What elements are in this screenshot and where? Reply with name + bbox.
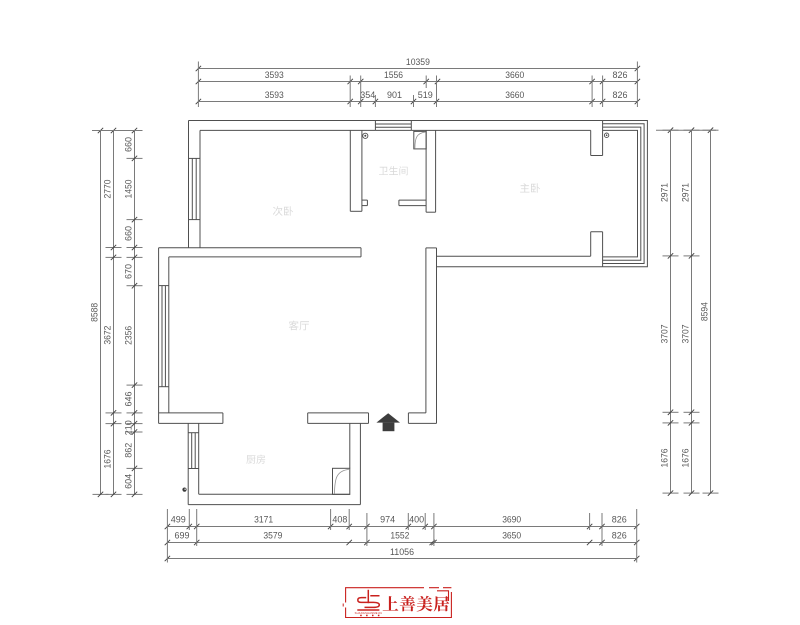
svg-text:670: 670 (123, 264, 133, 279)
svg-text:974: 974 (380, 515, 395, 525)
svg-text:210: 210 (123, 420, 133, 435)
svg-text:519: 519 (418, 90, 433, 100)
svg-text:400: 400 (409, 515, 424, 525)
svg-text:3171: 3171 (254, 515, 273, 525)
svg-text:2971: 2971 (659, 183, 669, 202)
svg-text:862: 862 (123, 443, 133, 458)
svg-text:826: 826 (612, 515, 627, 525)
svg-text:3650: 3650 (502, 531, 521, 541)
svg-text:8588: 8588 (89, 303, 99, 322)
svg-text:3660: 3660 (505, 70, 524, 80)
svg-text:3579: 3579 (263, 531, 282, 541)
svg-text:11056: 11056 (390, 547, 414, 557)
svg-text:408: 408 (332, 515, 347, 525)
svg-text:2356: 2356 (123, 326, 133, 345)
svg-text:2770: 2770 (102, 179, 112, 198)
svg-text:1450: 1450 (123, 179, 133, 198)
svg-text:SHANGSHANMEIJU: SHANGSHANMEIJU (355, 611, 383, 615)
svg-text:604: 604 (123, 474, 133, 489)
svg-text:826: 826 (613, 90, 628, 100)
svg-text:901: 901 (387, 90, 402, 100)
svg-text:3707: 3707 (659, 324, 669, 343)
svg-text:2971: 2971 (680, 183, 690, 202)
svg-text:1676: 1676 (680, 448, 690, 467)
svg-text:499: 499 (171, 515, 186, 525)
svg-text:1676: 1676 (102, 449, 112, 468)
svg-text:660: 660 (123, 137, 133, 152)
svg-text:3593: 3593 (265, 90, 284, 100)
svg-text:10359: 10359 (406, 57, 430, 67)
svg-text:1676: 1676 (659, 448, 669, 467)
svg-text:354: 354 (360, 90, 375, 100)
svg-text:660: 660 (123, 226, 133, 241)
svg-text:1556: 1556 (384, 70, 403, 80)
svg-text:826: 826 (613, 70, 628, 80)
svg-text:3672: 3672 (102, 326, 112, 345)
svg-text:1552: 1552 (390, 531, 409, 541)
svg-text:646: 646 (123, 391, 133, 406)
svg-text:699: 699 (175, 531, 190, 541)
svg-text:826: 826 (612, 531, 627, 541)
svg-text:8594: 8594 (699, 302, 709, 321)
svg-text:3660: 3660 (505, 90, 524, 100)
svg-text:3593: 3593 (265, 70, 284, 80)
svg-text:3690: 3690 (502, 515, 521, 525)
svg-text:3707: 3707 (680, 324, 690, 343)
